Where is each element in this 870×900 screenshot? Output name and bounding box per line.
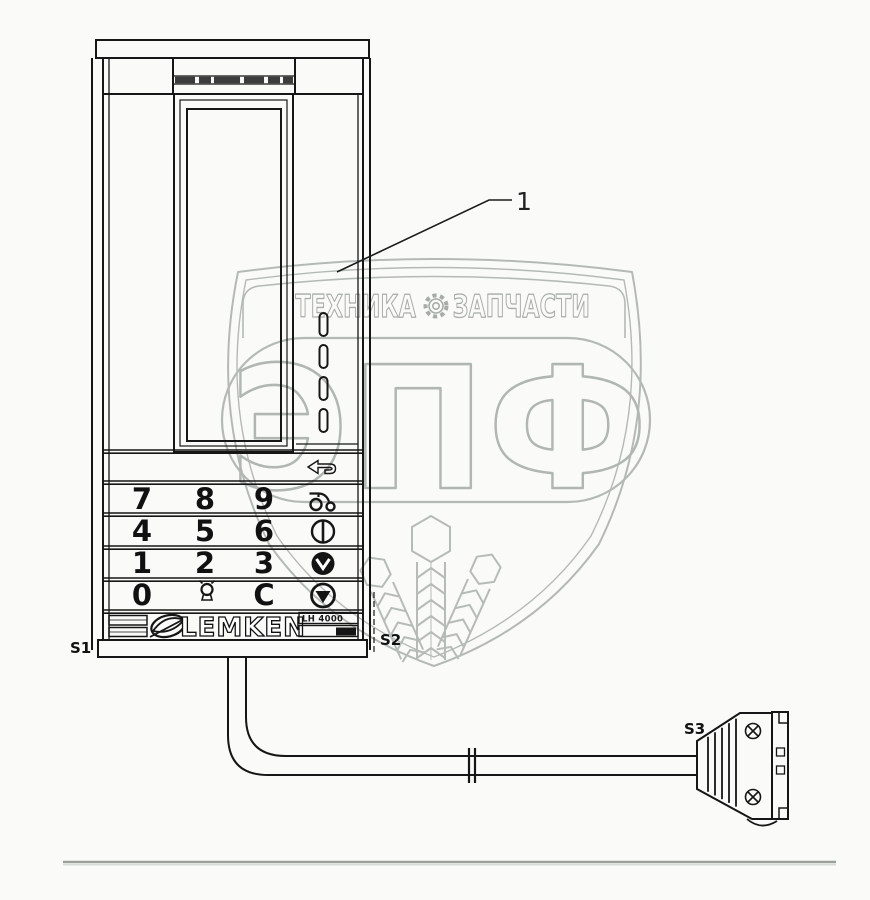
watermark-text-zapchasti: ЗАПЧАСТИ: [453, 289, 590, 325]
contrast-circle-icon: [312, 521, 334, 543]
key-9: 9: [254, 482, 274, 516]
key-2: 2: [195, 546, 215, 580]
model-code-mark: [336, 628, 356, 636]
key-1: 1: [132, 546, 152, 580]
lamp-icon: [200, 581, 215, 601]
key-clear: C: [253, 578, 274, 612]
key-8: 8: [195, 482, 215, 516]
model-label: LH 4000: [302, 615, 343, 625]
brand-logo-text: LEMKEN: [180, 613, 306, 643]
key-5: 5: [195, 514, 215, 548]
callout-s3-label: S3: [684, 720, 705, 738]
key-3: 3: [254, 546, 274, 580]
top-cap: [96, 40, 369, 58]
brand-band: LEMKEN LH 4000: [109, 611, 358, 643]
gear-icon: [426, 296, 447, 317]
bottom-rule: [63, 862, 836, 865]
connector-drawing: [697, 712, 788, 826]
cable-drawing: [228, 657, 697, 783]
parts-diagram-figure: ТЕХНИКА ЗАПЧАСТИ ЭПФ: [0, 0, 870, 900]
callout-1-label: 1: [516, 187, 532, 216]
watermark-shield: ТЕХНИКА ЗАПЧАСТИ ЭПФ: [222, 259, 650, 666]
watermark-text-tekhnika: ТЕХНИКА: [295, 289, 416, 325]
key-6: 6: [254, 514, 274, 548]
diagram-canvas: ТЕХНИКА ЗАПЧАСТИ ЭПФ: [0, 0, 870, 900]
callout-s2-label: S2: [380, 631, 401, 649]
callout-s1-label: S1: [70, 639, 91, 657]
filled-circle-chevron-down-icon: [312, 552, 335, 575]
key-0: 0: [132, 578, 152, 612]
cable-ferrule: [469, 748, 475, 783]
screw-cross-icon: [746, 724, 761, 805]
key-4: 4: [132, 514, 152, 548]
key-7: 7: [132, 482, 152, 516]
